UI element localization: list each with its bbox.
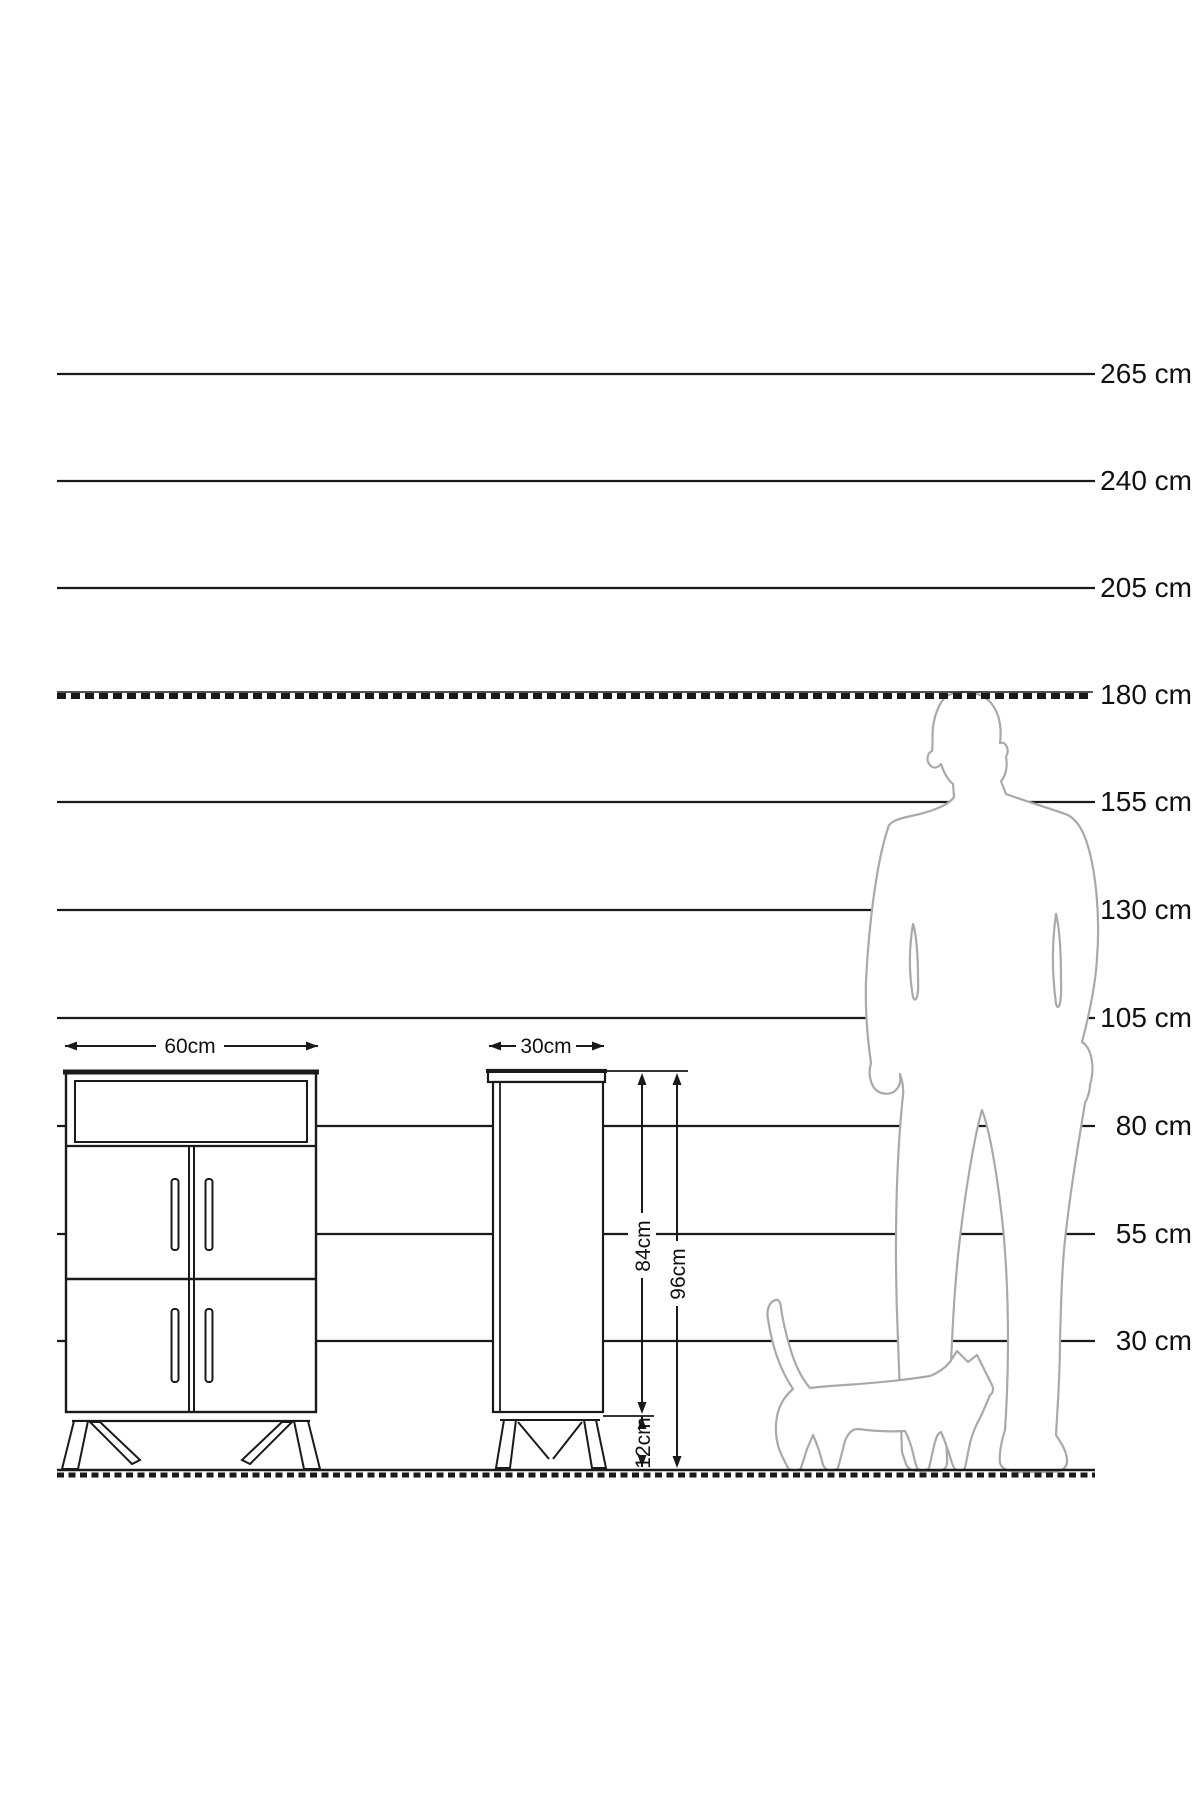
leg-height-label: 12cm	[632, 1417, 655, 1468]
door-handle	[172, 1179, 179, 1250]
door-handle	[206, 1309, 213, 1382]
size-comparison-diagram: 265 cm 240 cm 205 cm 180 cm 155 cm 130 c…	[0, 0, 1200, 1800]
height-label-265: 265 cm	[1100, 358, 1192, 389]
cabinet-side-view	[486, 1070, 607, 1468]
height-label-240: 240 cm	[1100, 465, 1192, 496]
height-label-105: 105 cm	[1100, 1002, 1192, 1033]
height-label-80: 80 cm	[1116, 1110, 1192, 1141]
diagram-page: 265 cm 240 cm 205 cm 180 cm 155 cm 130 c…	[0, 0, 1200, 1800]
body-height-label: 84cm	[632, 1220, 655, 1271]
side-depth-label: 30cm	[520, 1035, 571, 1058]
total-height-label: 96cm	[667, 1248, 690, 1299]
height-label-55: 55 cm	[1116, 1218, 1192, 1249]
leg-height-dimension-12cm: 12cm	[629, 1416, 655, 1469]
height-label-30: 30 cm	[1116, 1325, 1192, 1356]
cabinet-front-view	[62, 1071, 320, 1469]
height-label-130: 130 cm	[1100, 894, 1192, 925]
height-label-205: 205 cm	[1100, 572, 1192, 603]
height-label-180: 180 cm	[1100, 679, 1192, 710]
height-label-155: 155 cm	[1100, 786, 1192, 817]
cabinet-body	[66, 1071, 316, 1412]
door-handle	[172, 1309, 179, 1382]
door-handle	[206, 1179, 213, 1250]
front-width-label: 60cm	[164, 1035, 215, 1058]
side-body	[493, 1082, 603, 1412]
